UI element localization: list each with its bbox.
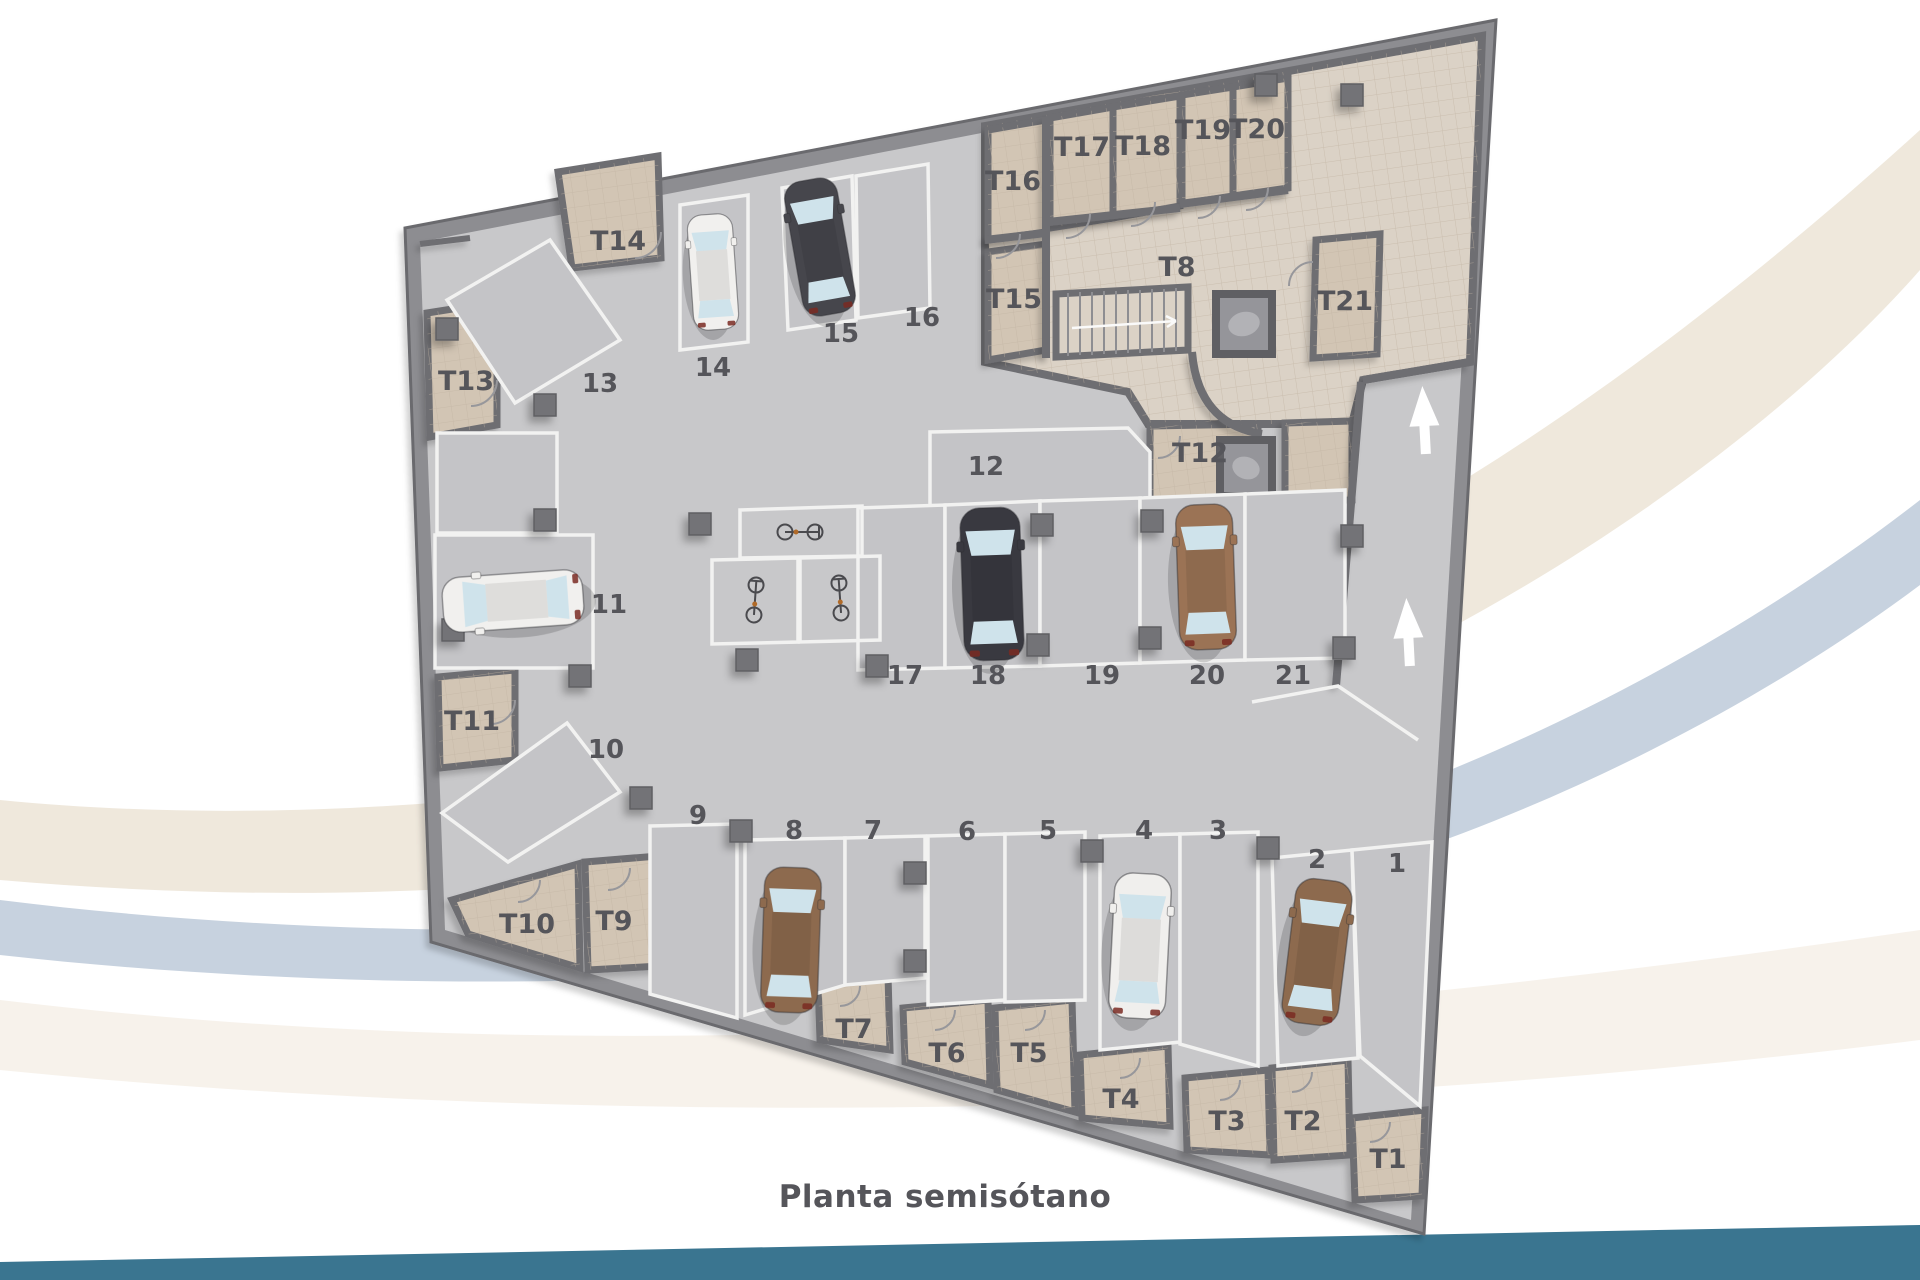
pillar-icon [436, 318, 458, 340]
space-label-4: 4 [1135, 816, 1153, 846]
space-label-3: 3 [1209, 816, 1227, 846]
space-9-outline [650, 824, 737, 1018]
storage-label-T8: T8 [1158, 252, 1195, 283]
pillar-icon [1081, 840, 1103, 862]
storage-label-T5: T5 [1010, 1038, 1047, 1069]
storage-label-T1: T1 [1369, 1144, 1406, 1175]
storage-label-T6: T6 [928, 1038, 965, 1069]
space-label-12: 12 [968, 452, 1004, 482]
space-label-14: 14 [695, 353, 731, 383]
storage-label-T16: T16 [985, 166, 1041, 197]
space-label-10: 10 [588, 735, 624, 765]
storage-label-T19: T19 [1175, 115, 1231, 146]
space-label-13: 13 [582, 369, 618, 399]
space-label-20: 20 [1189, 661, 1225, 691]
floorplan-image: T1T2T3T4T5T6T7T8T9T10T11T12T13T14T15T16T… [0, 0, 1920, 1280]
pillar-icon [730, 820, 752, 842]
space-label-21: 21 [1275, 661, 1311, 691]
pillar-icon [1333, 637, 1355, 659]
pillar-icon [1255, 74, 1277, 96]
storage-label-T13: T13 [438, 366, 494, 397]
caption: Planta semisótano [779, 1179, 1112, 1215]
storage-label-T7: T7 [835, 1014, 872, 1045]
storage-label-T15: T15 [986, 284, 1042, 315]
pillar-icon [630, 787, 652, 809]
storage-label-T21: T21 [1317, 286, 1373, 317]
room-T17 [1050, 107, 1113, 228]
space-label-19: 19 [1084, 661, 1120, 691]
pillar-icon [1031, 514, 1053, 536]
space-label-6: 6 [958, 817, 976, 847]
storage-label-T11: T11 [444, 706, 500, 737]
pillar-icon [866, 655, 888, 677]
stairs-icon [1056, 287, 1188, 357]
space-label-8: 8 [785, 816, 803, 846]
space-label-16: 16 [904, 303, 940, 333]
pillar-icon [1341, 84, 1363, 106]
space-label-11: 11 [591, 590, 627, 620]
space-19-outline [1040, 498, 1140, 666]
space-16-outline [856, 164, 930, 318]
space-6-outline [928, 834, 1005, 1005]
storage-label-T10: T10 [499, 909, 555, 940]
space-21-outline [1245, 490, 1345, 660]
pillar-icon [689, 513, 711, 535]
space-label-9: 9 [689, 801, 707, 831]
pillar-icon [1341, 525, 1363, 547]
pillar-icon [1139, 627, 1161, 649]
pillar-icon [534, 394, 556, 416]
pillar-icon [534, 509, 556, 531]
pillar-icon [904, 950, 926, 972]
storage-label-T20: T20 [1229, 114, 1285, 145]
storage-label-T2: T2 [1284, 1106, 1321, 1137]
space-3-outline [1180, 832, 1258, 1066]
pillar-icon [569, 665, 591, 687]
elevator-icon [1212, 290, 1276, 358]
space-label-7: 7 [864, 816, 882, 846]
pillar-icon [736, 649, 758, 671]
space-5-outline [1005, 832, 1085, 1002]
space-label-2: 2 [1308, 845, 1326, 875]
pillar-icon [1257, 837, 1279, 859]
space-label-17: 17 [887, 661, 923, 691]
storage-label-T18: T18 [1115, 131, 1171, 162]
storage-label-T17: T17 [1054, 132, 1110, 163]
storage-label-T4: T4 [1102, 1084, 1139, 1115]
space-label-5: 5 [1039, 816, 1057, 846]
storage-label-T14: T14 [590, 226, 646, 257]
space-label-18: 18 [970, 661, 1006, 691]
storage-label-T12: T12 [1172, 438, 1228, 469]
pillar-icon [1027, 634, 1049, 656]
space-label-15: 15 [823, 319, 859, 349]
pillar-icon [904, 862, 926, 884]
storage-label-T9: T9 [595, 906, 632, 937]
space-17-outline [858, 505, 945, 670]
pillar-icon [1141, 510, 1163, 532]
storage-label-T3: T3 [1208, 1106, 1245, 1137]
space-label-1: 1 [1388, 849, 1406, 879]
